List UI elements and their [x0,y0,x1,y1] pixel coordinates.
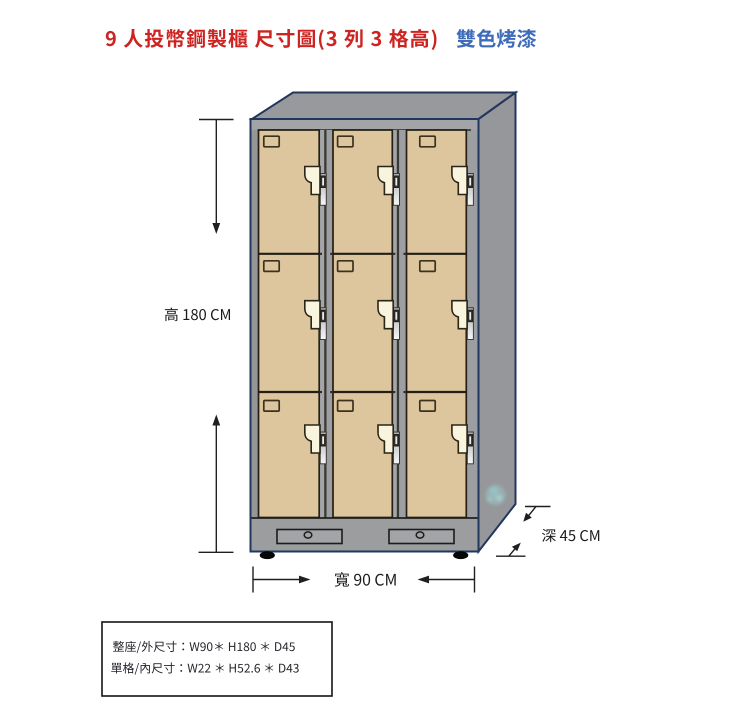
svg-text:雙色烤漆: 雙色烤漆 [456,23,537,52]
svg-text:9 人投幣鋼製櫃 尺寸圖(3 列 3 格高): 9 人投幣鋼製櫃 尺寸圖(3 列 3 格高) [105,23,439,52]
svg-text:深 45 CM: 深 45 CM [542,525,601,546]
svg-text:單格/內尺寸：W22 ＊ H52.6 ＊ D43: 單格/內尺寸：W22 ＊ H52.6 ＊ D43 [111,659,300,676]
svg-text:高 180 CM: 高 180 CM [164,304,232,325]
svg-text:寬 90 CM: 寬 90 CM [334,568,397,591]
svg-text:整座/外尺寸：W90＊ H180 ＊ D45: 整座/外尺寸：W90＊ H180 ＊ D45 [113,638,296,655]
